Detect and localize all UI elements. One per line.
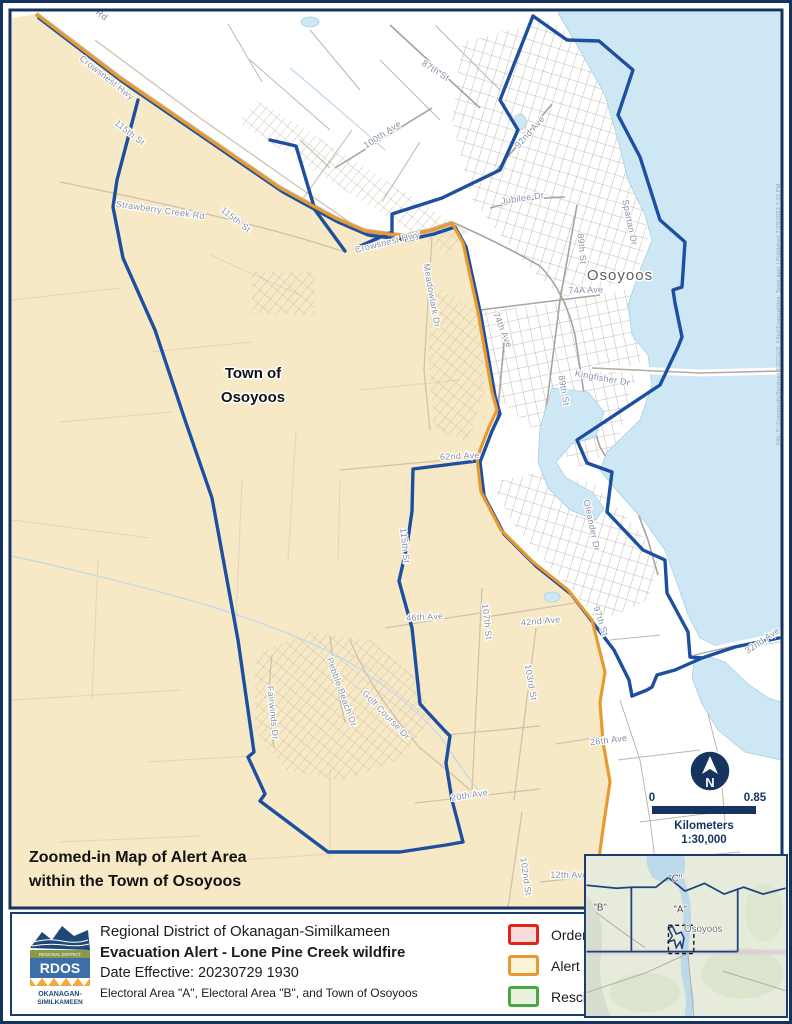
logo-band-text: REGIONAL DISTRICT xyxy=(39,952,81,957)
street-label: 12th Ave xyxy=(550,870,587,880)
street-label: 87th St xyxy=(420,58,451,83)
inset-area-a: "A" xyxy=(673,905,687,916)
logo-mountains xyxy=(30,926,90,950)
inset-map: "C" "B" "A" Osoyoos xyxy=(584,854,788,1018)
logo-name-line2: SIMILKAMEEN xyxy=(37,999,83,1006)
date-effective: Date Effective: 20230729 1930 xyxy=(100,963,500,984)
footer-text-block: Regional District of Okanagan-Similkamee… xyxy=(100,914,500,1002)
town-of-osoyoos-label-line2: Osoyoos xyxy=(221,389,285,406)
logo-acronym: RDOS xyxy=(40,960,80,976)
north-arrow-letter: N xyxy=(705,775,714,790)
rdos-logo: REGIONAL DISTRICT RDOS OKANAGAN- SIMILKA… xyxy=(28,920,94,1013)
legend-label-alert: Alert xyxy=(551,958,580,974)
areas-covered: Electoral Area "A", Electoral Area "B", … xyxy=(100,984,500,1002)
org-name: Regional District of Okanagan-Similkamee… xyxy=(100,921,500,942)
inset-area-c: "C" xyxy=(668,873,683,884)
legend-swatch-alert xyxy=(508,955,539,976)
scale-max: 0.85 xyxy=(744,792,767,804)
street-label: 74A Ave xyxy=(568,284,603,295)
logo-sunburst xyxy=(30,978,90,986)
legend-swatch-rescind xyxy=(508,986,539,1007)
legend-label-order: Order xyxy=(551,927,587,943)
town-of-osoyoos-label-line1: Town of xyxy=(225,365,282,382)
logo-name-line1: OKANAGAN- xyxy=(38,991,82,998)
inset-area-b: "B" xyxy=(593,903,607,914)
north-arrow: N xyxy=(690,751,730,791)
street-label: 62nd Ave xyxy=(440,450,480,462)
map-caption-line2: within the Town of Osoyoos xyxy=(28,873,241,890)
scale-ratio: 1:30,000 xyxy=(681,834,726,846)
rdos-logo-graphic: REGIONAL DISTRICT RDOS OKANAGAN- SIMILKA… xyxy=(28,920,92,1008)
inset-osoyoos-label: Osoyoos xyxy=(684,924,723,935)
scale-units: Kilometers xyxy=(674,820,733,832)
map-title: Evacuation Alert - Lone Pine Creek wildf… xyxy=(100,942,500,963)
scale-zero: 0 xyxy=(649,792,655,804)
map-caption-line1: Zoomed-in Map of Alert Area xyxy=(29,849,247,866)
street-label: 46th Ave xyxy=(406,611,444,623)
evacuation-alert-map-page: { "page": {"background": "#ffffff", "bor… xyxy=(0,0,792,1024)
city-label-osoyoos: Osoyoos xyxy=(587,267,653,284)
legend-swatch-order xyxy=(508,924,539,945)
